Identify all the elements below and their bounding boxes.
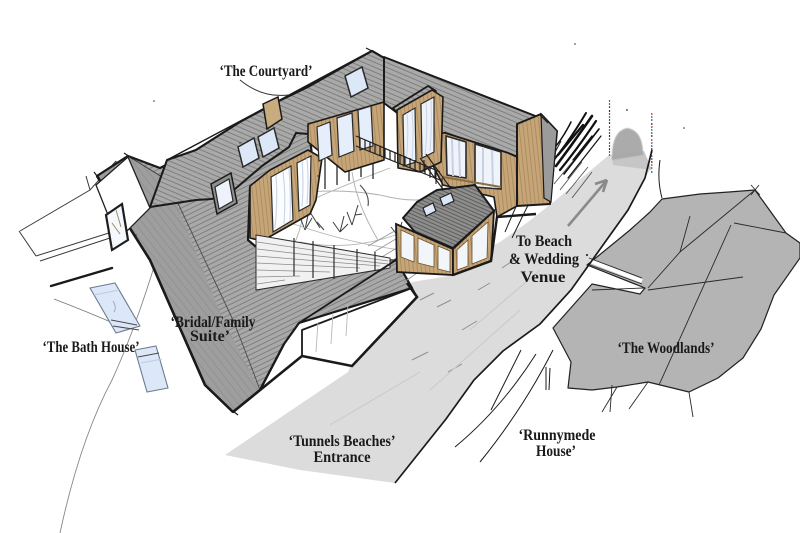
svg-text:Suite’: Suite’ <box>190 328 230 345</box>
svg-text:To Beach: To Beach <box>516 233 572 250</box>
svg-text:‘The Courtyard’: ‘The Courtyard’ <box>220 63 313 80</box>
svg-text:‘Runnymede: ‘Runnymede <box>519 427 596 444</box>
svg-text:‘The Bath House’: ‘The Bath House’ <box>43 339 140 356</box>
svg-text:‘Tunnels Beaches’: ‘Tunnels Beaches’ <box>289 433 396 450</box>
svg-text:House’: House’ <box>536 443 576 460</box>
svg-text:& Wedding: & Wedding <box>509 251 579 268</box>
svg-text:Entrance: Entrance <box>314 449 371 466</box>
svg-text:‘The Woodlands’: ‘The Woodlands’ <box>618 340 715 357</box>
svg-text:Venue: Venue <box>521 269 566 286</box>
